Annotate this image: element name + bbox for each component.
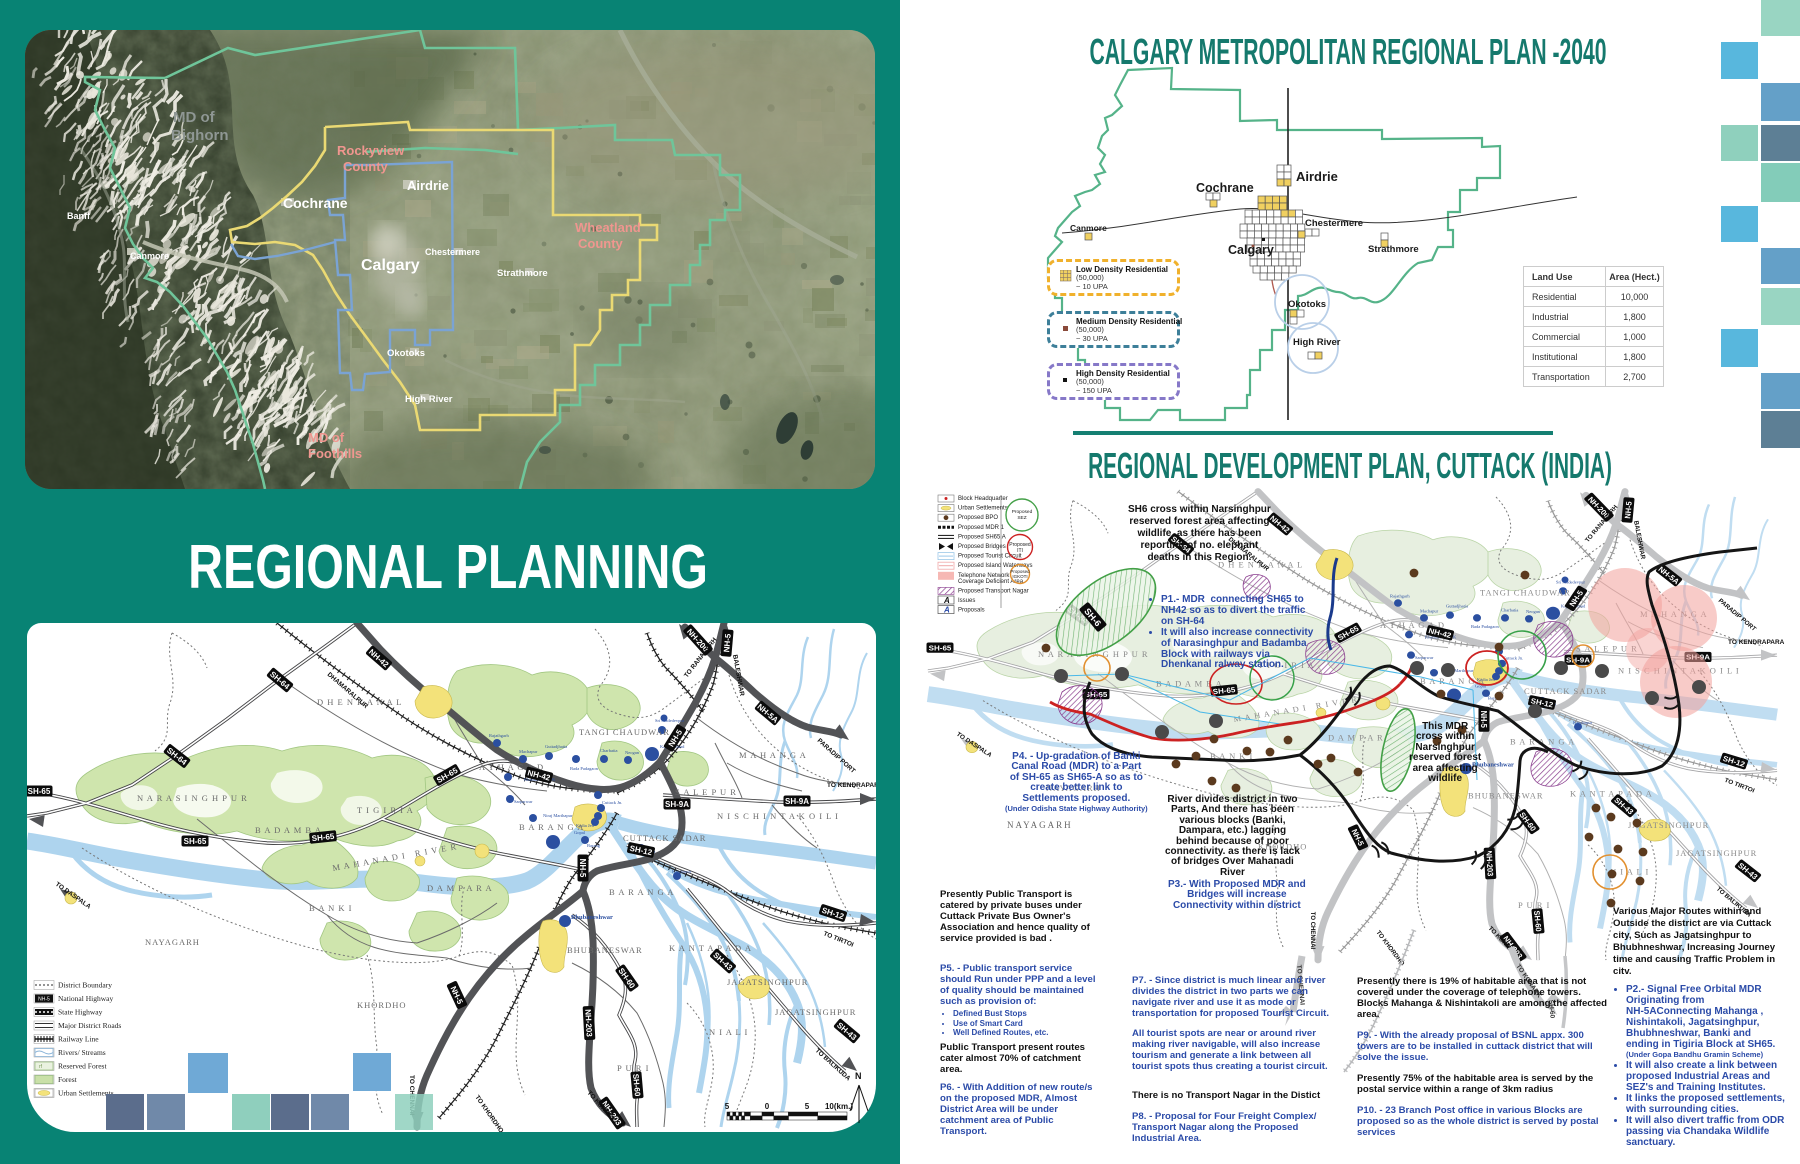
svg-text:10(km.): 10(km.) (825, 1102, 853, 1111)
svg-text:MD of: MD of (173, 109, 216, 126)
svg-text:Foothills: Foothills (308, 446, 362, 461)
svg-text:M A H A N G A: M A H A N G A (739, 750, 807, 760)
svg-text:Block Headquarter: Block Headquarter (958, 496, 1008, 502)
svg-text:Airdrie: Airdrie (407, 178, 449, 193)
svg-text:Rajathgarh: Rajathgarh (489, 733, 509, 738)
svg-text:Airdrie: Airdrie (1296, 169, 1338, 184)
svg-text:Rockyview: Rockyview (337, 143, 405, 158)
svg-text:Strathmore: Strathmore (1368, 244, 1419, 255)
svg-text:5: 5 (725, 1102, 730, 1111)
svg-text:P U R I: P U R I (617, 1063, 649, 1073)
svg-text:Niraj Marthapur: Niraj Marthapur (543, 813, 573, 818)
svg-text:TO DASPALA: TO DASPALA (54, 881, 92, 911)
svg-text:5: 5 (805, 1102, 810, 1111)
svg-text:Bhubaneshwar: Bhubaneshwar (571, 914, 613, 921)
svg-text:Charbatia: Charbatia (600, 748, 618, 753)
svg-text:High River: High River (1293, 337, 1341, 348)
svg-text:A: A (943, 606, 950, 615)
svg-text:N A R A S I N G H P U R: N A R A S I N G H P U R (137, 793, 248, 803)
svg-text:Cochrane: Cochrane (283, 195, 348, 211)
svg-text:Railway Line: Railway Line (58, 1035, 99, 1044)
svg-text:KHORDHO: KHORDHO (357, 1000, 407, 1010)
svg-text:Canmore: Canmore (130, 251, 169, 261)
svg-text:Okotoks: Okotoks (387, 348, 425, 359)
svg-text:CUTTACK SADAR: CUTTACK SADAR (623, 833, 706, 843)
svg-text:Proposals: Proposals (958, 608, 985, 614)
svg-text:ITI: ITI (1017, 548, 1023, 554)
svg-text:National Highway: National Highway (58, 994, 113, 1003)
svg-text:Strathmore: Strathmore (497, 268, 548, 279)
svg-text:T I G I R I A: T I G I R I A (357, 805, 414, 815)
svg-text:County: County (578, 236, 624, 251)
svg-text:Proposed: Proposed (1012, 509, 1033, 515)
svg-text:TO TIRTOI: TO TIRTOI (822, 930, 854, 949)
svg-text:Proposed BPO: Proposed BPO (958, 515, 998, 521)
svg-text:Forest: Forest (58, 1075, 78, 1084)
svg-text:Barang: Barang (587, 843, 601, 848)
svg-text:Rivers/ Streams: Rivers/ Streams (58, 1048, 106, 1057)
svg-text:SH-9A: SH-9A (665, 800, 689, 809)
svg-text:SH-65: SH-65 (28, 787, 51, 796)
svg-text:B A N K I: B A N K I (309, 903, 352, 913)
svg-text:Proposed MDR 1: Proposed MDR 1 (958, 525, 1005, 531)
svg-text:High River: High River (405, 394, 453, 405)
svg-text:Canmore: Canmore (1070, 223, 1107, 233)
svg-text:Banff: Banff (67, 211, 91, 221)
svg-text:SH-9A: SH-9A (785, 797, 809, 806)
svg-text:Calgary: Calgary (361, 257, 420, 274)
svg-text:Chestermere: Chestermere (425, 247, 480, 257)
svg-text:TO KHORDHO: TO KHORDHO (473, 1094, 504, 1132)
svg-text:Chestermere: Chestermere (1305, 218, 1363, 229)
svg-text:Major District Roads: Major District Roads (58, 1021, 121, 1030)
svg-text:TO KENDRAPARA: TO KENDRAPARA (827, 782, 876, 789)
svg-text:Neogan: Neogan (625, 750, 640, 755)
svg-text:K A N T A P A D A: K A N T A P A D A (669, 943, 752, 953)
svg-text:SH-12: SH-12 (821, 906, 846, 922)
svg-text:District Boundary: District Boundary (58, 981, 112, 990)
svg-text:Urban Settlements: Urban Settlements (58, 1089, 114, 1098)
svg-text:County: County (343, 159, 389, 174)
svg-text:Machapur: Machapur (519, 749, 538, 754)
svg-text:S A L E P U R: S A L E P U R (675, 787, 737, 797)
svg-text:NH-5: NH-5 (38, 997, 50, 1003)
svg-text:Proposed Bridges: Proposed Bridges (958, 544, 1006, 550)
svg-text:0: 0 (765, 1102, 770, 1111)
svg-text:D A M P A R A: D A M P A R A (427, 883, 493, 893)
svg-text:IGKOTI: IGKOTI (1012, 574, 1027, 579)
svg-text:Sarparwar: Sarparwar (514, 799, 533, 804)
svg-text:SH-65: SH-65 (184, 837, 207, 846)
svg-text:JAGATSINGHPUR: JAGATSINGHPUR (727, 977, 808, 987)
svg-text:JAGATSINGHPUR: JAGATSINGHPUR (775, 1007, 856, 1017)
svg-text:Sri Madedevpur: Sri Madedevpur (655, 718, 685, 723)
svg-text:TANGI CHAUDWAR: TANGI CHAUDWAR (579, 727, 670, 737)
svg-text:Urban Settlements: Urban Settlements (958, 506, 1008, 512)
svg-text:N I A L I: N I A L I (709, 1027, 748, 1037)
svg-text:MD of: MD of (308, 430, 345, 445)
svg-text:Proposed SH65 A: Proposed SH65 A (958, 534, 1006, 540)
svg-text:BHUBANESWAR: BHUBANESWAR (567, 945, 643, 955)
svg-text:PARADIP PORT: PARADIP PORT (816, 737, 857, 775)
svg-text:A: A (943, 596, 950, 605)
svg-text:Wheatland: Wheatland (575, 220, 641, 235)
svg-text:NH-5: NH-5 (578, 859, 587, 878)
svg-text:Cuttack Jn.: Cuttack Jn. (602, 800, 622, 805)
svg-text:Okotoks: Okotoks (1288, 299, 1326, 310)
svg-text:Cochrane: Cochrane (1196, 181, 1254, 195)
svg-text:NH-203: NH-203 (583, 1009, 593, 1038)
svg-text:B A R A N G A: B A R A N G A (609, 887, 674, 897)
svg-text:Issues: Issues (958, 598, 975, 604)
svg-text:State Highway: State Highway (58, 1008, 103, 1017)
svg-text:NAYAGARH: NAYAGARH (145, 937, 200, 947)
svg-text:Reserved Forest: Reserved Forest (58, 1062, 107, 1071)
svg-text:SEZ: SEZ (1017, 515, 1026, 521)
svg-text:N I S C H I N T A K O I L I: N I S C H I N T A K O I L I (717, 811, 839, 821)
svg-text:Proposed Transport Nagar: Proposed Transport Nagar (958, 588, 1029, 594)
svg-text:B A R A N G A: B A R A N G A (519, 822, 584, 832)
svg-text:Calgary: Calgary (1228, 243, 1274, 257)
svg-text:Bada Padagaon: Bada Padagaon (570, 766, 599, 771)
svg-text:Guttadjhatia: Guttadjhatia (545, 744, 567, 749)
svg-text:Bighorn: Bighorn (171, 127, 229, 144)
svg-text:Kandarpur: Kandarpur (672, 869, 692, 874)
svg-text:NH-5: NH-5 (722, 633, 733, 653)
svg-text:N: N (855, 1071, 862, 1081)
